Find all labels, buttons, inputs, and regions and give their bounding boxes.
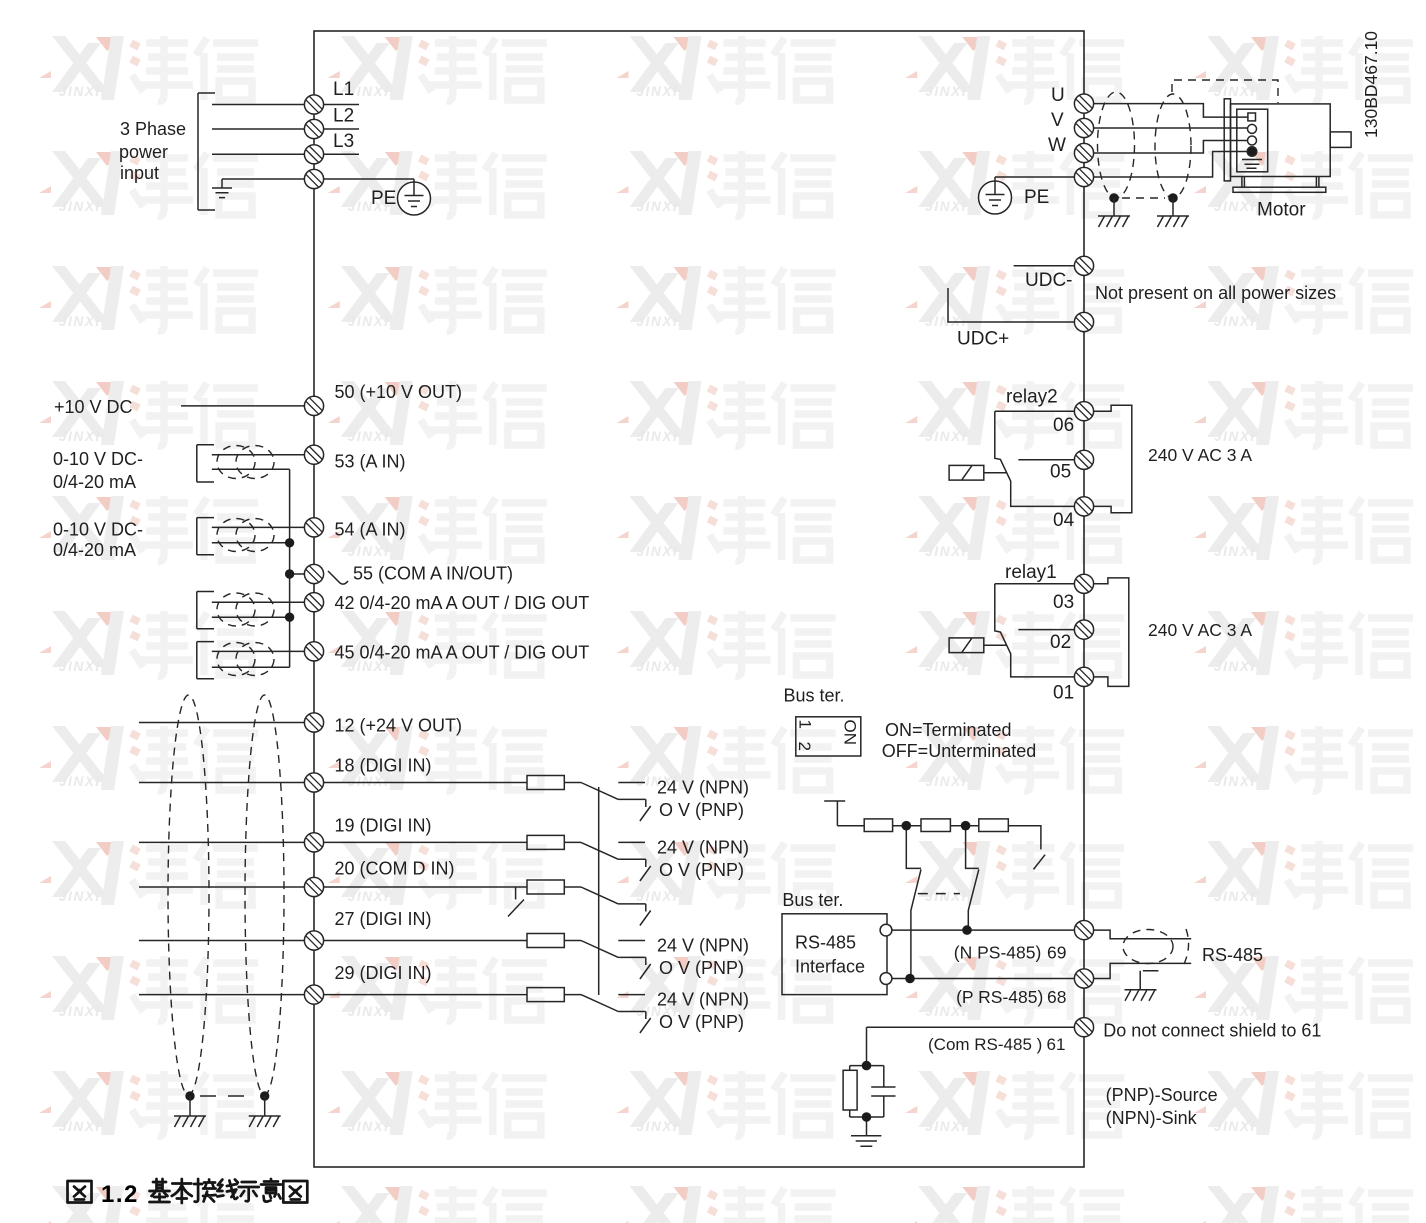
svg-text:Not present on all power sizes: Not present on all power sizes [1095,283,1336,303]
svg-text:19 (DIGI IN): 19 (DIGI IN) [335,816,432,836]
svg-text:W: W [1048,135,1066,156]
svg-text:20 (COM D IN): 20 (COM D IN) [335,859,455,879]
svg-text:power: power [119,142,168,162]
svg-text:U: U [1051,85,1065,106]
svg-text:55 (COM A IN/OUT): 55 (COM A IN/OUT) [353,564,513,584]
svg-text:04: 04 [1053,510,1075,531]
svg-text:L2: L2 [333,106,354,127]
svg-text:O V (PNP): O V (PNP) [659,958,744,978]
svg-text:03: 03 [1053,592,1074,613]
svg-text:130BD467.10: 130BD467.10 [1361,31,1381,138]
svg-text:RS-485: RS-485 [795,933,856,953]
svg-text:0-10 V DC-: 0-10 V DC- [53,449,143,469]
svg-text:relay2: relay2 [1006,387,1058,408]
svg-text:61: 61 [1047,1035,1066,1054]
svg-text:O V (PNP): O V (PNP) [659,1012,744,1032]
svg-text:3 Phase: 3 Phase [120,119,186,139]
svg-text:(P RS-485): (P RS-485) [956,987,1043,1007]
svg-text:2: 2 [795,742,814,751]
svg-text:(PNP)-Source: (PNP)-Source [1106,1085,1218,1105]
svg-text:PE: PE [1024,187,1049,208]
svg-text:18 (DIGI IN): 18 (DIGI IN) [335,756,432,776]
svg-text:UDC+: UDC+ [957,329,1009,350]
svg-text:(N PS-485): (N PS-485) [954,943,1042,963]
svg-text:O V (PNP): O V (PNP) [659,860,744,880]
svg-text:Motor: Motor [1257,200,1306,221]
svg-text:50 (+10 V OUT): 50 (+10 V OUT) [335,382,463,402]
svg-text:24 V (NPN): 24 V (NPN) [657,990,749,1010]
svg-text:24 V (NPN): 24 V (NPN) [657,778,749,798]
svg-text:54 (A IN): 54 (A IN) [335,520,406,540]
svg-text:input: input [120,163,159,183]
svg-text:ON=Terminated: ON=Terminated [885,720,1012,740]
svg-text:Bus ter.: Bus ter. [784,686,845,706]
svg-text:O V (PNP): O V (PNP) [659,800,744,820]
svg-text:L1: L1 [333,79,354,100]
svg-text:05: 05 [1050,462,1071,483]
svg-text:0/4-20 mA: 0/4-20 mA [53,472,136,492]
svg-text:69: 69 [1047,943,1066,963]
svg-text:68: 68 [1047,987,1066,1007]
svg-text:29 (DIGI IN): 29 (DIGI IN) [335,963,432,983]
svg-text:06: 06 [1053,415,1074,436]
svg-text:0-10 V DC-: 0-10 V DC- [53,520,143,540]
svg-text:Interface: Interface [795,957,865,977]
svg-text:OFF=Unterminated: OFF=Unterminated [882,741,1037,761]
svg-text:02: 02 [1050,632,1071,653]
svg-text:01: 01 [1053,683,1074,704]
svg-text:relay1: relay1 [1005,562,1057,583]
svg-text:V: V [1051,110,1064,131]
svg-text:24 V (NPN): 24 V (NPN) [657,936,749,956]
svg-text:L3: L3 [333,131,354,152]
svg-text:(Com RS-485 ): (Com RS-485 ) [928,1035,1042,1054]
svg-text:53 (A IN): 53 (A IN) [335,452,406,472]
svg-text:42 0/4-20 mA A OUT / DIG OUT: 42 0/4-20 mA A OUT / DIG OUT [335,593,590,613]
svg-text:240 V AC 3 A: 240 V AC 3 A [1148,445,1252,465]
svg-text:1.2: 1.2 [101,1181,139,1208]
svg-text:+10 V DC: +10 V DC [54,397,133,417]
svg-text:Bus ter.: Bus ter. [782,890,843,910]
svg-text:12 (+24 V OUT): 12 (+24 V OUT) [335,716,463,736]
svg-text:ON: ON [841,720,860,746]
svg-text:1: 1 [796,720,815,729]
svg-text:45 0/4-20 mA A OUT / DIG OUT: 45 0/4-20 mA A OUT / DIG OUT [335,643,590,663]
svg-text:240 V AC 3 A: 240 V AC 3 A [1148,620,1252,640]
svg-text:UDC-: UDC- [1025,270,1073,291]
svg-text:(NPN)-Sink: (NPN)-Sink [1106,1108,1198,1128]
svg-text:Do not connect shield to 61: Do not connect shield to 61 [1103,1021,1321,1041]
svg-text:24 V (NPN): 24 V (NPN) [657,838,749,858]
svg-text:0/4-20 mA: 0/4-20 mA [53,540,136,560]
svg-text:RS-485: RS-485 [1202,945,1263,965]
svg-text:PE: PE [371,188,396,209]
svg-text:27 (DIGI IN): 27 (DIGI IN) [335,909,432,929]
